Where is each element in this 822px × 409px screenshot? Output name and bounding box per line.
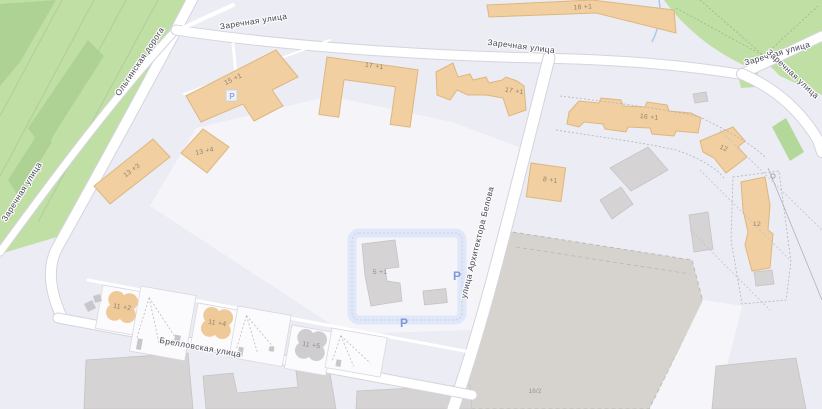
map-canvas[interactable]: Ольгинская дорога Заречная улица Заречна… — [0, 0, 822, 409]
parking-icon: P — [453, 269, 461, 283]
map-viewport[interactable]: Ольгинская дорога Заречная улица Заречна… — [0, 0, 822, 409]
building-shape[interactable] — [423, 289, 447, 305]
parking-icon-small: P — [229, 92, 235, 101]
construction-label-16-2: 16/2 — [529, 388, 542, 395]
building-small-gray[interactable] — [423, 289, 447, 305]
building-small-gray[interactable] — [754, 270, 774, 286]
parking-icon: P — [400, 316, 408, 330]
building-gray[interactable] — [84, 353, 193, 409]
building-label-5-1: 5 +1 — [373, 269, 388, 276]
building-gray[interactable] — [712, 358, 806, 409]
building-label-12b: 12 — [753, 221, 761, 228]
building-label-18-1: 18 +1 — [573, 3, 592, 11]
building-small-gray[interactable] — [693, 92, 708, 103]
playground-equipment — [269, 346, 275, 352]
